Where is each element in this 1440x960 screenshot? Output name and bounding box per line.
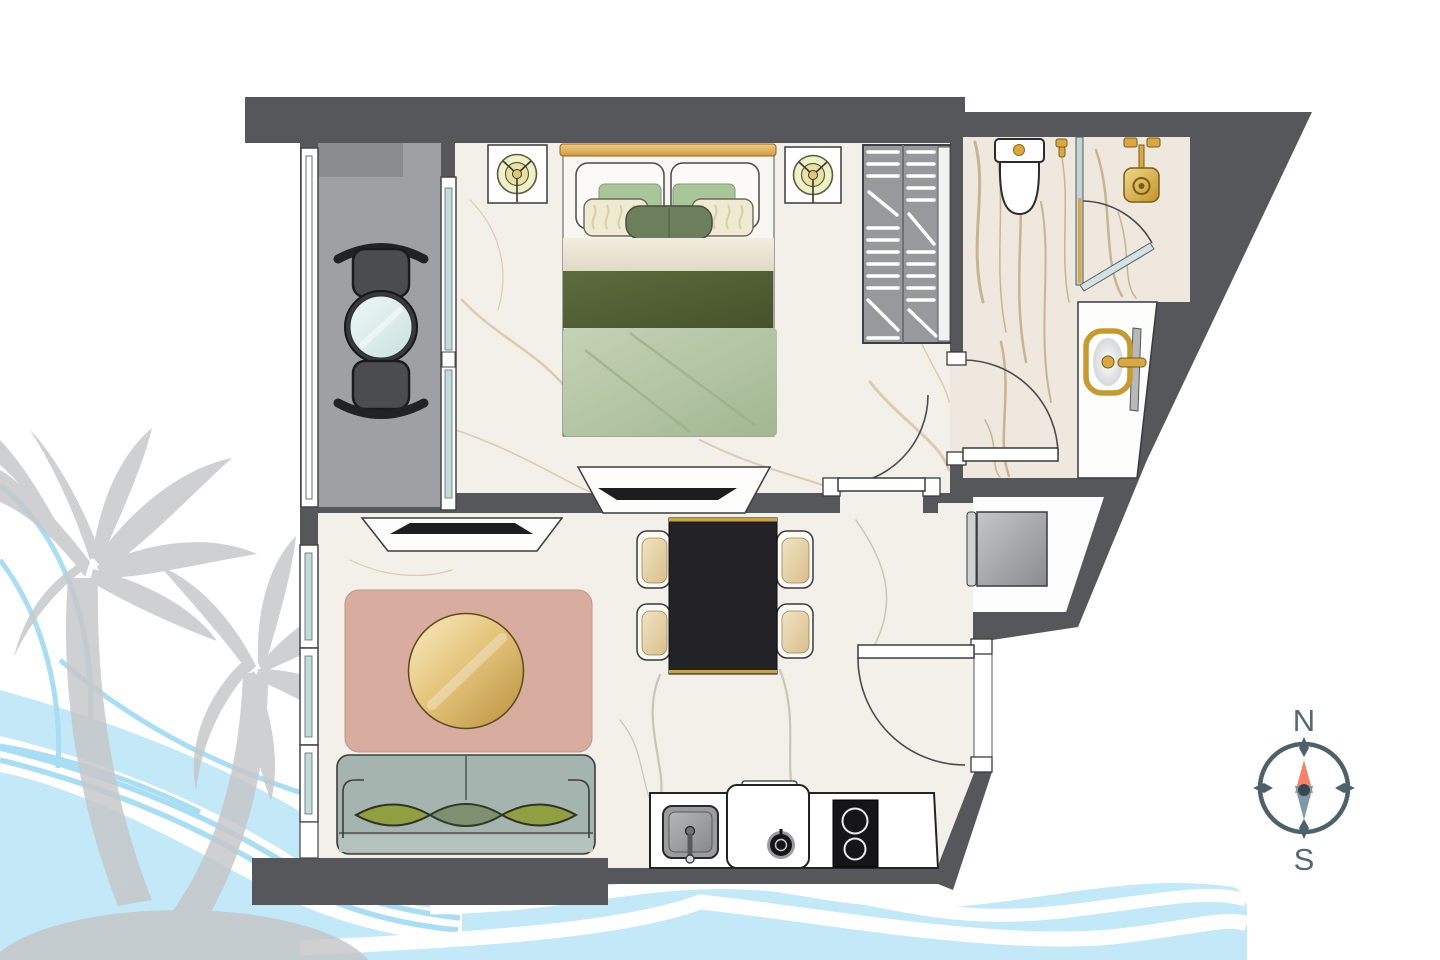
bed-sheet-fold — [563, 238, 774, 271]
compass-rose: N S — [1253, 703, 1355, 877]
compass-south-label: S — [1294, 842, 1315, 877]
dining-table-gold-edge — [669, 518, 777, 522]
utility-niche — [967, 512, 1047, 586]
compass-pivot — [1298, 784, 1310, 796]
floor-plan-canvas: N S — [0, 0, 1440, 960]
balcony-wall-step — [318, 143, 403, 177]
sofa — [337, 755, 595, 854]
bed-blanket — [563, 328, 777, 436]
bedroom-tv-console — [578, 467, 770, 513]
cooktop — [833, 800, 878, 867]
living-tv-console — [362, 518, 562, 551]
washing-machine — [727, 781, 809, 868]
balcony-railing — [301, 148, 318, 507]
dining-chair — [777, 604, 813, 658]
kitchen-sink — [663, 806, 718, 863]
washer-handle — [967, 512, 976, 586]
bedroom-doorway — [840, 493, 923, 513]
tv-icon — [598, 488, 737, 500]
living-windows — [300, 545, 318, 858]
headboard — [560, 144, 776, 156]
wardrobe-side-panel — [938, 147, 950, 341]
double-bed — [560, 144, 777, 436]
appliance-unit — [977, 512, 1047, 586]
bathroom-doorway — [950, 364, 963, 453]
bed-dark-band — [563, 271, 773, 328]
balcony-chair — [353, 249, 409, 297]
dining-chair — [777, 531, 813, 588]
kitchen — [650, 781, 938, 868]
floor-plan-page: N S — [0, 0, 1440, 960]
shower-partition-gold — [1078, 198, 1082, 283]
sink-faucet — [1118, 358, 1146, 367]
tv-icon — [390, 523, 533, 534]
sliding-door — [441, 177, 456, 510]
washer-door — [769, 833, 794, 858]
balcony-chair — [353, 361, 409, 409]
sofa-base-band — [339, 835, 593, 852]
dining-chair — [637, 604, 670, 660]
compass-north-label: N — [1293, 703, 1315, 738]
flush-button — [1014, 145, 1025, 156]
entry-threshold — [974, 652, 992, 760]
sink-drain — [1102, 356, 1114, 368]
dining-chair — [637, 531, 670, 588]
wardrobe — [863, 145, 950, 343]
dining-table — [669, 518, 777, 674]
dining-table-gold-edge — [669, 670, 777, 674]
